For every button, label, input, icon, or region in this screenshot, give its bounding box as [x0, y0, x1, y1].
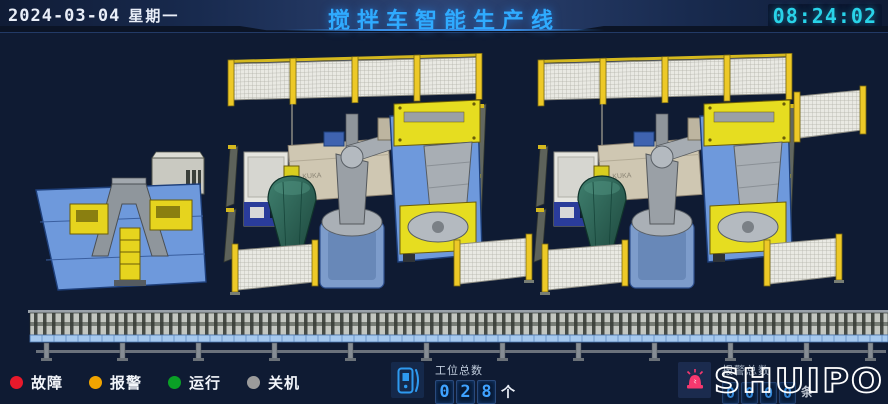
date-text: 2024-03-04: [8, 6, 120, 26]
fault-status-dot: [10, 376, 23, 389]
alarm-status-dot: [89, 376, 102, 389]
weekday-text: 星期一: [128, 8, 179, 25]
legend-item-off: 关机: [247, 372, 300, 393]
status-legend: 故障 报警 运行 关机: [10, 372, 300, 393]
digit: 8: [477, 380, 496, 404]
header-bar: 2024-03-04星期一 搅拌车智能生产线 08:24:02: [0, 0, 888, 33]
date-display: 2024-03-04星期一: [8, 5, 179, 26]
production-line-scene: KUKA: [0, 32, 888, 363]
legend-label: 关机: [268, 372, 300, 393]
robot-cell-1[interactable]: [224, 53, 534, 295]
clock-display: 08:24:02: [768, 4, 882, 28]
alarm-beacon-icon: [678, 362, 711, 398]
digit: 2: [456, 380, 475, 404]
top-right-fence: [794, 86, 866, 142]
station-device-icon: [391, 362, 424, 398]
off-status-dot: [247, 376, 260, 389]
digit: 0: [435, 380, 454, 404]
station-counter-unit: 个: [501, 380, 515, 404]
station-counter-label: 工位总数: [435, 362, 483, 378]
station-counter: 工位总数 0 2 8 个: [391, 362, 515, 404]
robot-cell-2[interactable]: [534, 53, 844, 295]
legend-item-alarm: 报警: [89, 372, 142, 393]
roller-conveyor: [28, 310, 888, 361]
legend-label: 运行: [189, 372, 221, 393]
title-underline: [284, 29, 604, 31]
alarm-counter-area: [678, 362, 711, 398]
running-status-dot: [168, 376, 181, 389]
shuipo-logo: SHUIPO: [712, 362, 888, 400]
legend-label: 报警: [110, 372, 142, 393]
left-fixture-station[interactable]: [36, 152, 206, 290]
status-bar: 故障 报警 运行 关机 工位总数 0 2: [0, 360, 888, 403]
station-counter-value: 0 2 8 个: [435, 380, 515, 404]
legend-item-fault: 故障: [10, 372, 63, 393]
alarm-logo-wrap: 报警总数 0 0 0 0 条 SHUIPO: [712, 360, 888, 403]
legend-item-running: 运行: [168, 372, 221, 393]
legend-label: 故障: [31, 372, 63, 393]
shuipo-logo-text: SHUIPO: [714, 362, 884, 400]
